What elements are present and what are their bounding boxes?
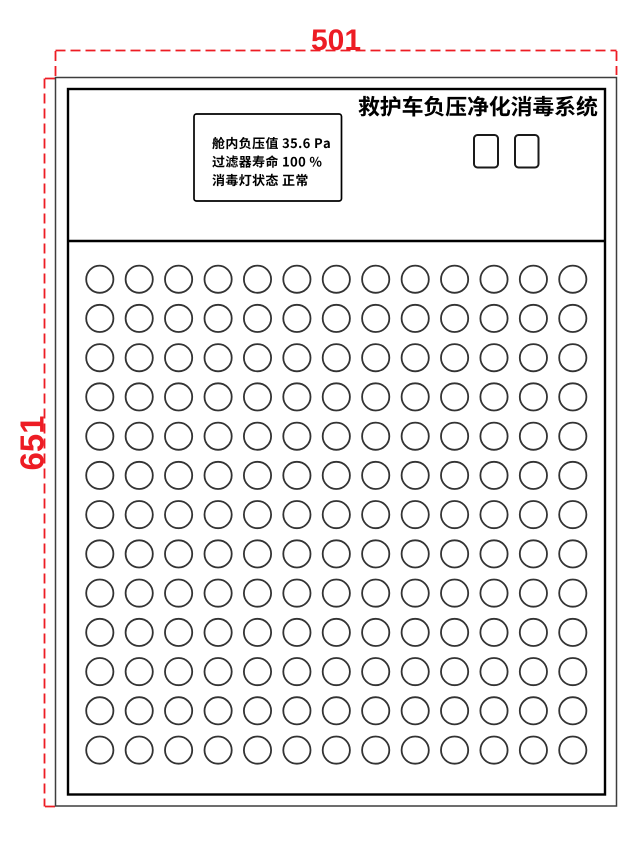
svg-text:651: 651 xyxy=(14,415,51,470)
svg-text:501: 501 xyxy=(311,24,361,57)
